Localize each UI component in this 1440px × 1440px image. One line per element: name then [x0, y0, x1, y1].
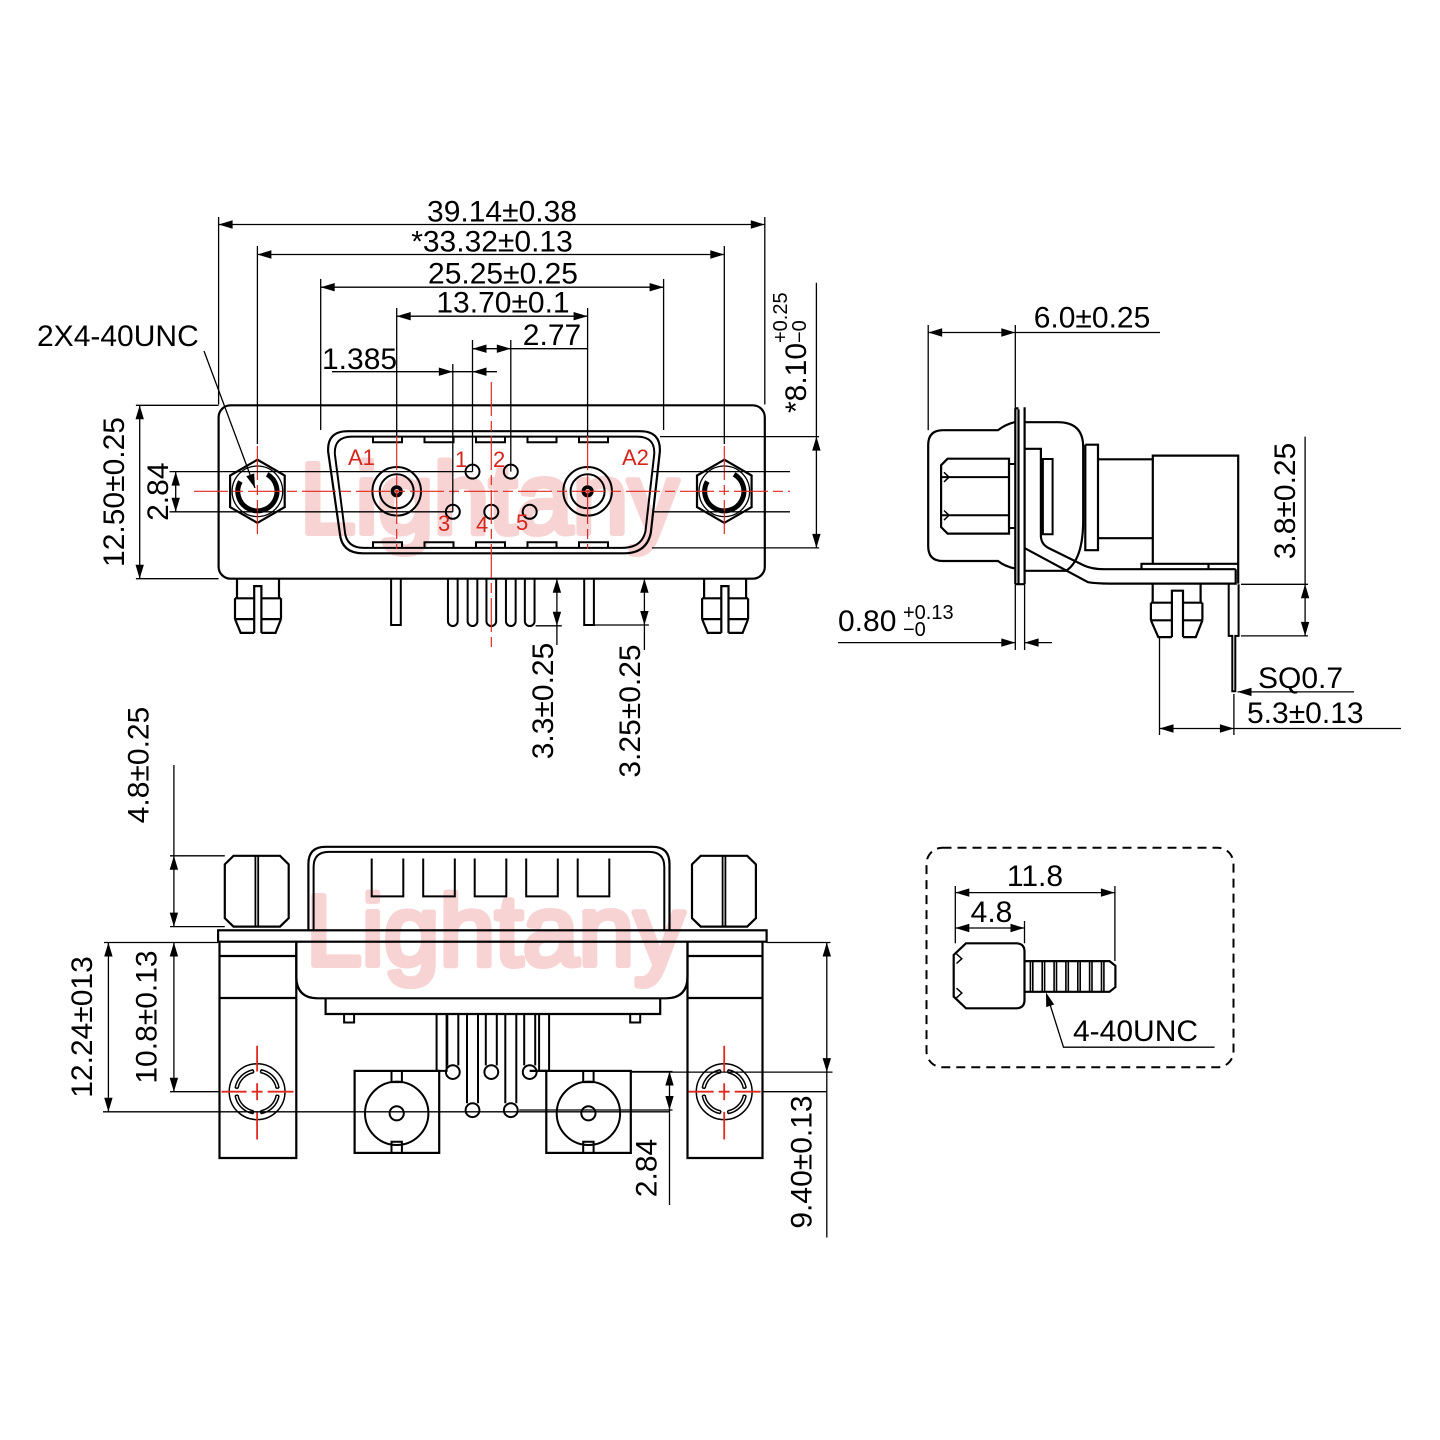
- svg-text:1.385: 1.385: [322, 343, 397, 376]
- svg-text:2: 2: [493, 447, 505, 472]
- svg-text:*33.32±0.13: *33.32±0.13: [411, 226, 573, 259]
- svg-text:39.14±0.38: 39.14±0.38: [427, 196, 577, 229]
- svg-text:A1: A1: [348, 445, 375, 470]
- svg-text:2.77: 2.77: [523, 319, 581, 352]
- svg-text:3: 3: [438, 511, 450, 536]
- svg-text:2.84: 2.84: [142, 463, 175, 521]
- svg-text:9.40±0.13: 9.40±0.13: [786, 1095, 819, 1228]
- svg-text:3.25±0.25: 3.25±0.25: [614, 644, 647, 777]
- svg-text:12.24±013: 12.24±013: [66, 956, 99, 1098]
- svg-text:*8.10: *8.10: [780, 343, 813, 413]
- svg-text:2.84: 2.84: [631, 1139, 664, 1197]
- svg-text:12.50±0.25: 12.50±0.25: [98, 417, 131, 567]
- svg-text:4.8: 4.8: [971, 896, 1013, 929]
- svg-text:3.8±0.25: 3.8±0.25: [1269, 443, 1302, 560]
- svg-text:13.70±0.1: 13.70±0.1: [436, 287, 569, 320]
- svg-text:4.8±0.25: 4.8±0.25: [123, 707, 156, 824]
- svg-text:10.8±0.13: 10.8±0.13: [131, 950, 164, 1083]
- svg-text:4: 4: [476, 512, 488, 537]
- svg-text:−0: −0: [903, 619, 926, 641]
- svg-text:5.3±0.13: 5.3±0.13: [1247, 697, 1364, 730]
- svg-text:SQ0.7: SQ0.7: [1258, 662, 1343, 695]
- svg-text:6.0±0.25: 6.0±0.25: [1034, 302, 1151, 335]
- svg-text:4-40UNC: 4-40UNC: [1073, 1015, 1198, 1048]
- svg-text:11.8: 11.8: [1007, 860, 1063, 893]
- svg-text:3.3±0.25: 3.3±0.25: [527, 643, 560, 760]
- svg-text:2X4-40UNC: 2X4-40UNC: [37, 320, 199, 353]
- svg-text:1: 1: [455, 447, 467, 472]
- svg-text:5: 5: [516, 510, 528, 535]
- svg-text:−0: −0: [789, 320, 811, 343]
- svg-text:0.80: 0.80: [838, 605, 896, 638]
- svg-text:A2: A2: [622, 445, 649, 470]
